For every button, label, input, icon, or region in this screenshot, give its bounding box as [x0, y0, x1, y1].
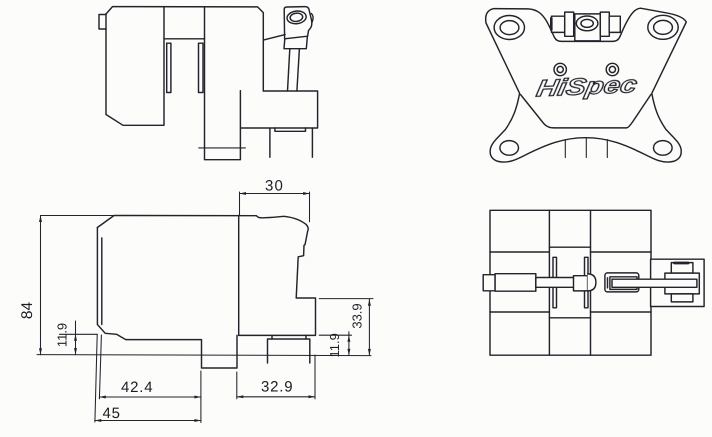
svg-text:42.4: 42.4: [121, 379, 153, 396]
svg-text:HiSpec: HiSpec: [535, 71, 640, 102]
svg-text:30: 30: [265, 177, 284, 194]
svg-text:33.9: 33.9: [350, 303, 365, 328]
svg-text:32.9: 32.9: [261, 379, 293, 396]
svg-text:84: 84: [19, 302, 36, 320]
svg-text:11.9: 11.9: [327, 333, 342, 357]
svg-text:11.9: 11.9: [55, 323, 70, 347]
svg-text:45: 45: [103, 405, 121, 422]
